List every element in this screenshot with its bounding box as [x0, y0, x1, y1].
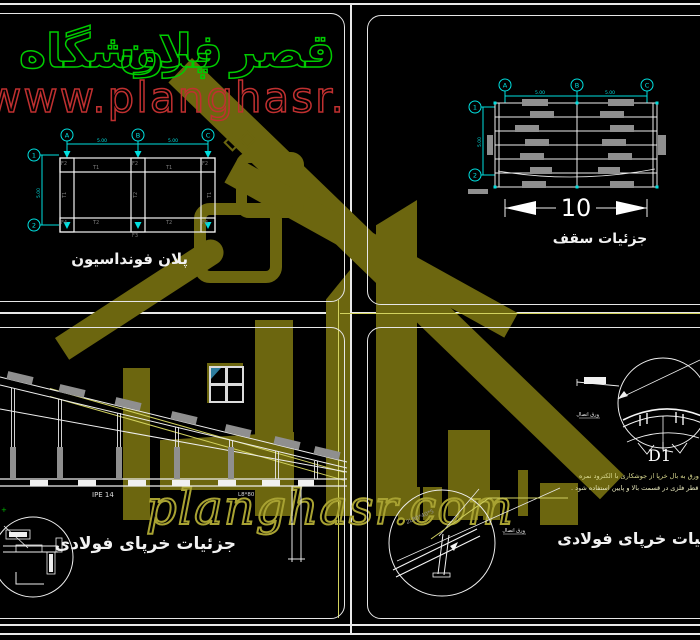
foundation-member-labels: T1 T1 T2 T2 T1 T2 T1 F2 F2 F2 F4 F4 F3: [61, 161, 213, 239]
plate-label: ورق اتصال: [502, 528, 525, 534]
detail-circle-chord: 2L80*40*5: [389, 490, 495, 596]
d1-leader: ورق اتصال: [576, 377, 619, 418]
dim-arrow-left: [505, 201, 536, 215]
truss-chords: [0, 377, 347, 486]
support-detail-circle: [0, 517, 73, 597]
ceiling-total-dimension: 10: [505, 194, 647, 222]
truss-elevation-drawing: IPE 14 L8*80 +: [0, 360, 350, 618]
dim-span2: 5.00: [605, 90, 615, 96]
total-span-dim: 10: [561, 194, 592, 222]
grid-bubble-1: 1: [32, 152, 36, 160]
ceiling-joist-plates: [468, 99, 666, 194]
grid-bubble-a: A: [65, 132, 70, 140]
ceiling-caption: جزئیات سقف: [550, 231, 650, 247]
dim-span2: 5.00: [168, 138, 178, 144]
truss-gusset-plates: [30, 480, 314, 486]
dim-height: 5.00: [36, 188, 42, 198]
watermark-url-top: www.planghasr.com: [0, 72, 345, 125]
foundation-grid-labels: A B C 1 2 5.00 5.00 5.00: [32, 132, 211, 230]
beam-size-label: IPE 14: [92, 491, 114, 499]
footing-label-f2: F2: [202, 161, 208, 167]
beam-label-t2: T2: [92, 220, 99, 226]
footing-label-f2: F2: [61, 161, 67, 167]
sheet-divider-vertical: [350, 3, 352, 633]
watermark-outline-h: [340, 313, 700, 314]
weld-note-line-2: ۵ یا قطر فلزی در قسمت بالا و پایین استفا…: [571, 484, 700, 492]
footing-label-f3: F3: [132, 233, 138, 239]
truss-stiffeners: [10, 447, 234, 479]
grid-bubble-c: C: [645, 82, 650, 90]
grid-bubble-2: 2: [32, 222, 36, 230]
chord-angle-label: 2L80*40*5: [405, 509, 435, 526]
truss-details-drawing: ورق اتصال D1 برای اتصال ورق به بال خرپا …: [355, 330, 700, 620]
foundation-caption: پلان فونداسیون: [84, 250, 188, 268]
grid-bubble-1: 1: [473, 104, 477, 112]
foundation-grid: [28, 129, 214, 231]
dim-arrow-right: [616, 201, 647, 215]
sheet-border-bottom: [0, 624, 700, 626]
truss-caption: جزئیات خرپای فولادی: [68, 534, 236, 554]
grid-bubble-b: B: [136, 132, 140, 140]
dim-span1: 5.00: [535, 90, 545, 96]
beam-label-t1: T1: [92, 165, 99, 171]
cad-sheet: { "sheet": {"bg": "#000000", "line_color…: [0, 0, 700, 640]
chord-detail-leaders: [397, 488, 560, 561]
grid-bubble-b: B: [575, 82, 579, 90]
grid-bubble-2: 2: [473, 172, 477, 180]
grid-bubble-a: A: [503, 82, 508, 90]
details-caption: جزئیات خرپای فولادی: [593, 529, 700, 548]
chord-detail-leader-yellow: [431, 498, 568, 539]
ceiling-plan-lines: [495, 103, 657, 187]
footing-label-f4: F4: [202, 220, 208, 226]
truss-right-support: [288, 486, 305, 562]
dim-height: 5.00: [477, 137, 483, 147]
footing-label-f4: F4: [61, 220, 67, 226]
detail-circle-d1: [618, 358, 700, 454]
beam-label-t2: T2: [133, 192, 139, 199]
ceiling-plan-drawing: A B C 1 2 5.00 5.00 5.00: [460, 70, 700, 222]
beam-label-t1: T1: [165, 165, 172, 171]
detail-id-label: D1: [648, 446, 671, 465]
beam-label-t2: T2: [165, 220, 172, 226]
beam-label-t1: T1: [62, 192, 68, 199]
truss-purlins: [6, 371, 340, 460]
grid-bubble-c: C: [206, 132, 211, 140]
sheet-border-bottom-outer: [0, 633, 700, 635]
survey-marker: +: [1, 506, 7, 514]
angle-size-label: L8*80: [238, 492, 255, 498]
weld-note-line-1: برای اتصال ورق به بال خرپا از جوشکاری با…: [579, 472, 700, 480]
footing-label-f2: F2: [132, 161, 138, 167]
beam-label-t1: T1: [207, 192, 213, 199]
d1-leader-label: ورق اتصال: [576, 412, 599, 418]
dim-span1: 5.00: [97, 138, 107, 144]
